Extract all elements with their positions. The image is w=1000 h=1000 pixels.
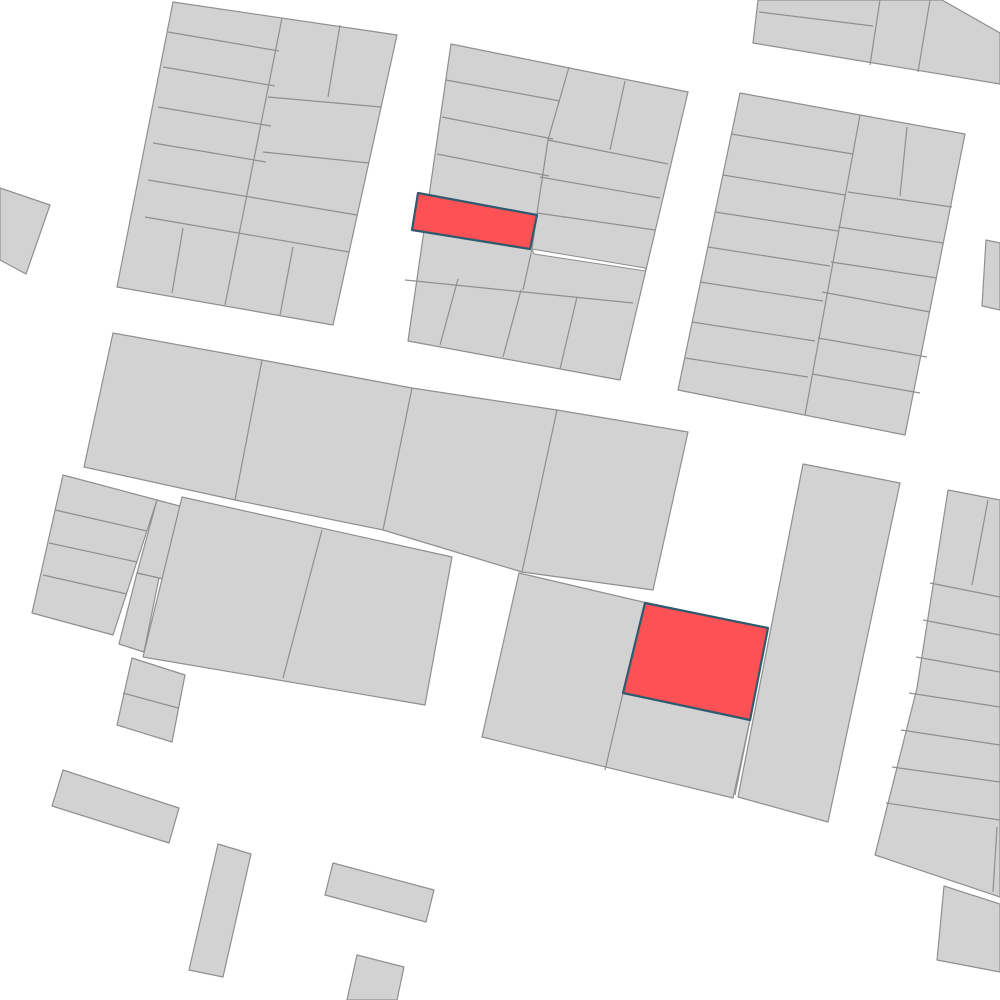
block-small-pair[interactable] (117, 658, 185, 742)
parcel-map[interactable] (0, 0, 1000, 1000)
block-bottom-right-corner[interactable] (937, 886, 1000, 972)
block-top-right[interactable] (678, 93, 965, 435)
parcel-small-vertical[interactable] (189, 844, 251, 977)
parcel-left-edge[interactable] (0, 188, 50, 274)
block-top-left[interactable] (117, 2, 397, 325)
parcel-small-horizontal-2[interactable] (325, 863, 434, 922)
map-canvas[interactable] (0, 0, 1000, 1000)
block-right-strips[interactable] (875, 490, 1000, 897)
parcel-right-edge-sliver[interactable] (982, 240, 1000, 310)
parcel-small-bottom-edge[interactable] (347, 955, 404, 1000)
block-top-right-corner[interactable] (753, 0, 1000, 84)
parcel-small-horizontal-1[interactable] (52, 770, 179, 843)
